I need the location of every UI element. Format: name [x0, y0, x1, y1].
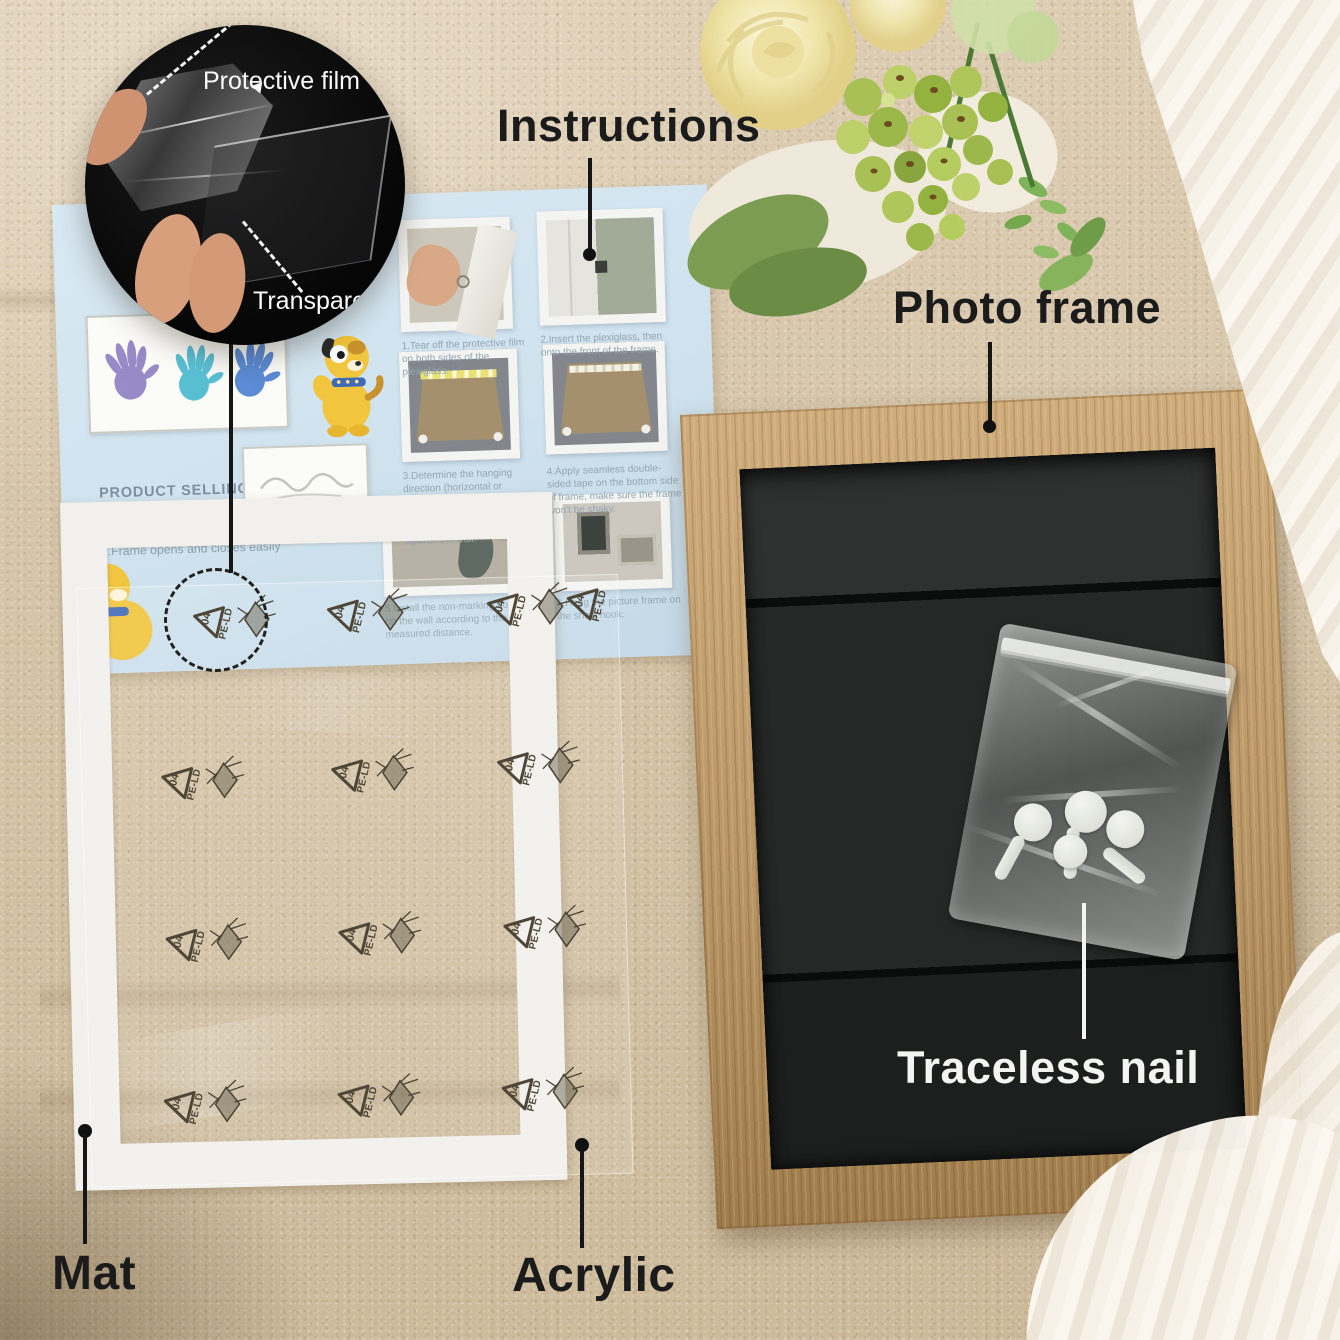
hung-frame-dark	[577, 512, 610, 555]
cartoon-dog	[304, 327, 385, 439]
traceless-nail-pointer-line	[1082, 903, 1086, 1039]
acrylic-pointer-line	[580, 1150, 584, 1248]
photo-frame	[680, 388, 1306, 1229]
photo-frame-pointer-dot	[983, 420, 996, 433]
protective-film-inset: Protective film Transparent	[85, 25, 405, 345]
step1-caption: 1.Tear off the protective film on both s…	[401, 336, 534, 379]
recycling-mark: 04PE-LD	[333, 745, 415, 809]
traceless-nail-item	[1103, 807, 1147, 851]
latch-graphic	[595, 261, 607, 273]
frame-back-graphic	[414, 369, 504, 442]
instructions-label: Instructions	[497, 100, 761, 152]
recycling-mark: 04PE-LD	[499, 738, 581, 802]
flower-arrangement	[648, 0, 1128, 322]
recycling-mark: 04PE-LD	[569, 574, 651, 638]
step2-caption: 2.Insert the plexiglass, then onto the f…	[540, 329, 681, 359]
instructions-pointer-dot	[583, 248, 596, 261]
recycling-mark: 04PE-LD	[168, 915, 250, 979]
hardware-bag	[947, 622, 1237, 960]
corner-dot	[493, 432, 502, 441]
step4-caption: 4.Apply seamless double-sided tape on th…	[546, 461, 686, 517]
photo-frame-pointer-line	[988, 342, 992, 424]
inset-pointer-line	[229, 340, 233, 573]
acrylic-glare	[228, 665, 432, 741]
highlight-dashed-circle	[164, 568, 268, 672]
hung-frame-light	[618, 534, 657, 565]
recycling-mark: 04PE-LD	[489, 579, 571, 643]
recycling-mark: 04PE-LD	[505, 902, 587, 966]
corner-dot	[563, 427, 572, 436]
acrylic-sheet: 04PE-LD 04PE-LD 04PE-LD 04PE-LD 04PE-LD …	[76, 574, 634, 1188]
recycling-mark: 04PE-LD	[329, 585, 411, 649]
mat-pointer-line	[83, 1134, 87, 1244]
mat-label: Mat	[52, 1246, 136, 1301]
step2-photo	[536, 208, 666, 326]
recycling-mark: 04PE-LD	[340, 1070, 422, 1134]
traceless-nail-label: Traceless nail	[897, 1042, 1199, 1094]
recycling-mark: 04PE-LD	[341, 908, 423, 972]
photo-frame-label: Photo frame	[893, 282, 1161, 334]
recycling-mark: 04PE-LD	[166, 1077, 248, 1141]
acrylic-label: Acrylic	[512, 1248, 676, 1303]
panel-line	[567, 220, 572, 316]
protective-film-label: Protective film	[203, 67, 360, 96]
recycling-mark: 04PE-LD	[163, 753, 245, 817]
corner-dot	[418, 434, 427, 443]
transparent-label: Transparent	[253, 287, 387, 316]
corner-dot	[641, 424, 650, 433]
instructions-pointer-line	[588, 158, 592, 252]
step1-photo	[398, 217, 513, 332]
product-photo-scene: PRODUCT SELLING POINT 1.Treasure your ch…	[0, 0, 1340, 1340]
recycling-mark: 04PE-LD	[504, 1064, 586, 1128]
